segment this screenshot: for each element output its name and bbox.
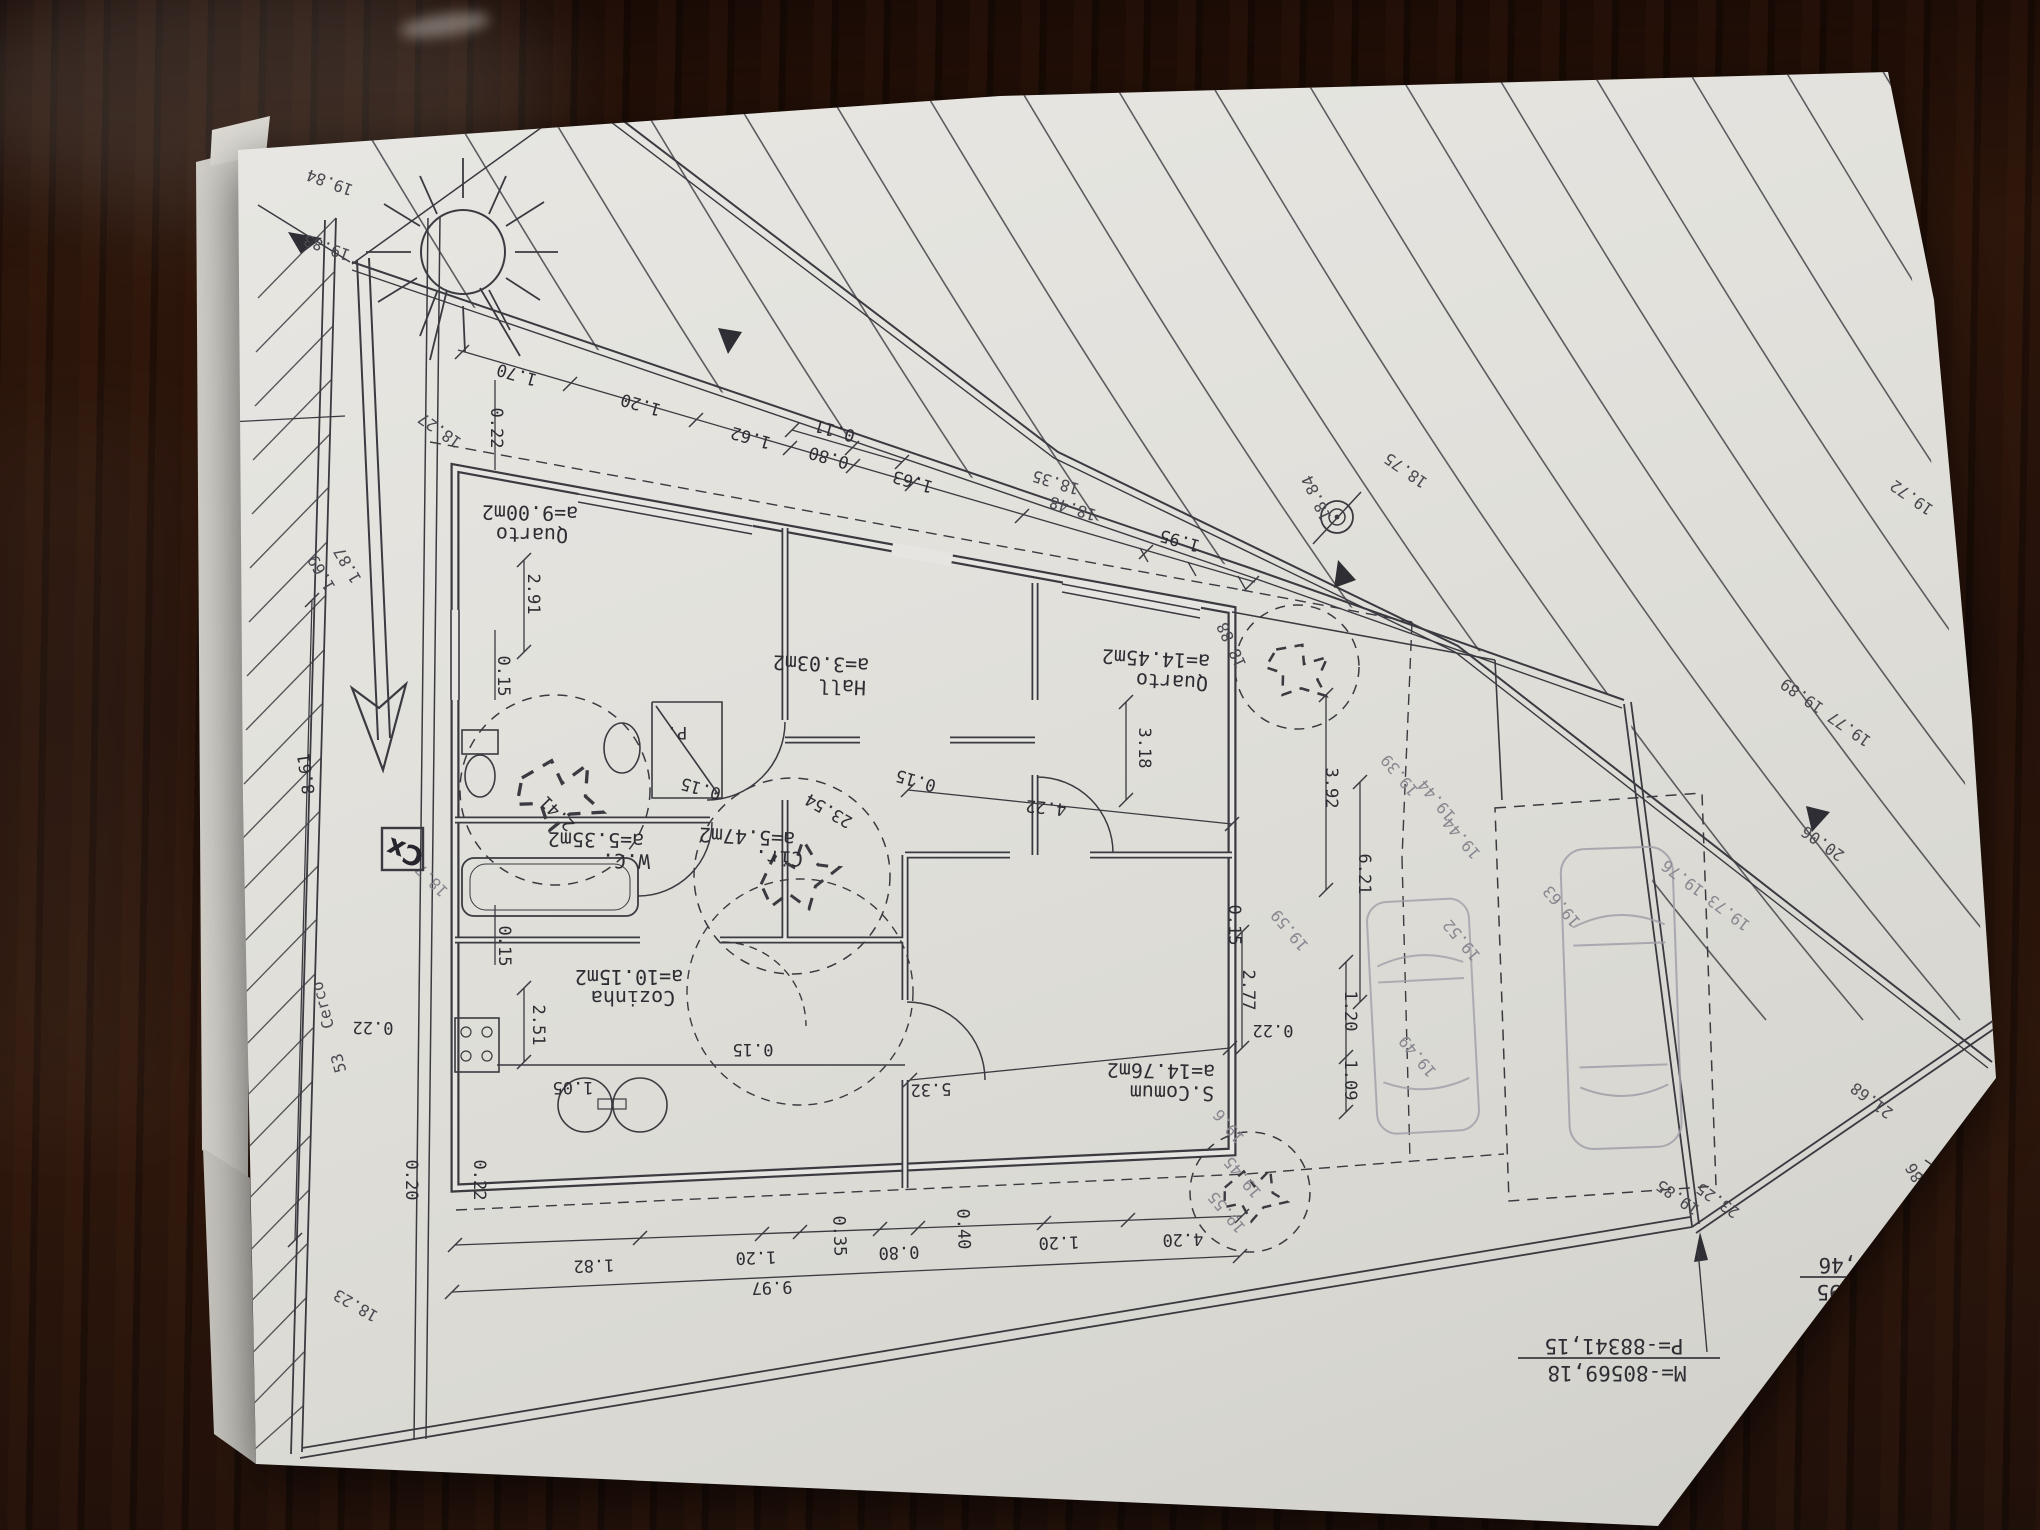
coordinate-label: P=-88341,15 — [1544, 1334, 1683, 1358]
dim-label: 1.82 — [573, 1254, 615, 1275]
elevation-label: 18.88 — [1213, 619, 1251, 671]
dim-label: 0.22 — [486, 408, 506, 449]
dim-label: 1.20 — [619, 389, 664, 420]
elevation-label: 18.84 — [1298, 472, 1336, 524]
dim-label: 6.21 — [1354, 854, 1374, 895]
elevation-label: 19.72 — [1887, 476, 1937, 519]
elevation-label: 23.25 — [1693, 1179, 1743, 1222]
dim-label: 0.22 — [1253, 1020, 1294, 1040]
room-area: a=14.76m2 — [1107, 1058, 1216, 1084]
photo-of-floor-plan: P=-88339,46 M=-80573,95 P=-88341,15 M=-8… — [0, 0, 2040, 1530]
coordinate-callouts: P=-88339,46 M=-80573,95 P=-88341,15 M=-8… — [1518, 1253, 1980, 1385]
dim-label: 0.20 — [401, 1160, 421, 1201]
dim-label: 0.80 — [878, 1241, 920, 1262]
dim-label: 0.15 — [494, 926, 514, 967]
elevation-label: 19.44 — [1439, 814, 1485, 863]
elevation-label: 19.59 — [1267, 906, 1313, 955]
dim-label: 1.20 — [1340, 991, 1360, 1032]
fence-label: 53 — [327, 1051, 350, 1075]
lot-boundary — [258, 94, 2004, 1458]
dim-label: 0.22 — [469, 1160, 489, 1201]
elevation-label: 1.98 — [1938, 1227, 1974, 1270]
room-name: Quarto — [1135, 668, 1208, 696]
dim-label: 8.61 — [294, 752, 320, 795]
coordinate-label: P=-88339,46 — [1818, 1253, 1957, 1277]
dim-label: 2.51 — [528, 1005, 548, 1046]
room-name: W.C. — [602, 849, 651, 874]
dim-label: 2.77 — [1238, 970, 1258, 1011]
dim-label: 1.95 — [1158, 525, 1203, 556]
dim-label: 1.09 — [1340, 1060, 1360, 1101]
elevation-label: 19.77 19.89 — [1777, 674, 1875, 750]
paper-background: P=-88339,46 M=-80573,95 P=-88341,15 M=-8… — [0, 0, 2040, 1530]
dim-label: 0.22 — [352, 1017, 393, 1038]
elevation-label: 18.27 — [415, 409, 465, 452]
dim-label: 1.20 — [735, 1246, 777, 1267]
dim-label: 3.18 — [1134, 728, 1154, 769]
dim-label: 2.91 — [523, 574, 543, 615]
north-arrow-icon — [352, 258, 406, 770]
dim-label: 1.20 — [1038, 1231, 1080, 1252]
elevation-label: 19.45 — [1220, 1153, 1266, 1202]
benchmark-arrow-icon — [718, 328, 742, 354]
dim-label: 0.15 — [733, 1039, 774, 1059]
room-name: Cir. — [754, 845, 803, 871]
site-plan-drawing: P=-88339,46 M=-80573,95 P=-88341,15 M=-8… — [0, 0, 2040, 1530]
toilet-icon — [465, 755, 495, 797]
room-name: S.Comum — [1130, 1080, 1215, 1105]
dim-label: 0.11 — [813, 415, 858, 446]
dim-label: 4.20 — [1162, 1228, 1204, 1249]
tree-symbol — [694, 778, 890, 974]
closet-label: P. — [667, 722, 687, 742]
dim-label: 23.54 — [802, 789, 856, 832]
garage-area — [1366, 793, 1716, 1201]
dim-label: 0.15 — [1224, 905, 1244, 946]
dim-label: 4.22 — [1025, 795, 1068, 819]
elevation-label: 19.84 — [304, 165, 356, 199]
room-area: a=9.00m2 — [482, 500, 579, 526]
elevation-label: 18.75 — [1381, 449, 1431, 492]
room-name: Quarto — [496, 522, 569, 547]
toilet-tank — [462, 730, 498, 754]
fence-label: Cerco — [307, 979, 338, 1030]
dim-label: 0.35 — [828, 1215, 849, 1257]
room-area: a=3.03m2 — [772, 650, 869, 677]
stove-icon — [455, 1018, 499, 1072]
dim-label: 1.62 — [729, 422, 774, 453]
dim-label: 0.40 — [952, 1208, 973, 1250]
elevation-label: 19.6 — [1209, 1105, 1248, 1147]
dim-label: 0.80 — [807, 442, 852, 473]
dim-label: 1.63 — [891, 466, 936, 497]
dim-label: 1.05 — [553, 1077, 594, 1097]
room-name: Cozinha — [591, 986, 675, 1010]
room-area: a=10.15m2 — [575, 965, 683, 989]
elevation-label: 20.06 — [1798, 822, 1848, 865]
dim-label: 0.15 — [493, 656, 513, 697]
dim-label: 5.32 — [910, 1078, 952, 1099]
coordinate-label: M=-80573,95 — [1816, 1280, 1955, 1304]
plan-paper: P=-88339,46 M=-80573,95 P=-88341,15 M=-8… — [0, 0, 2040, 1530]
sun-icon — [366, 158, 558, 360]
coordinate-label: M=-80569,18 — [1547, 1361, 1686, 1385]
tree-symbol — [687, 879, 913, 1105]
benchmark-arrow-icon — [1694, 1232, 1708, 1262]
elevation-label: 18.23 — [330, 1285, 381, 1326]
dim-label: 9.97 — [751, 1276, 793, 1297]
dim-label: 3.92 — [1321, 768, 1341, 809]
elevation-label: 19.83 — [301, 230, 353, 264]
elevation-label: 19.55 — [1204, 1188, 1250, 1237]
elevation-label: 21.86 — [1901, 1160, 1942, 1211]
elevation-label: 19.39 — [1377, 751, 1423, 800]
room-name: Hall — [817, 674, 866, 700]
elevation-label: 19.49 — [1395, 1032, 1441, 1081]
sink-icon — [604, 723, 640, 773]
car-outline — [1560, 846, 1682, 1150]
dim-label: 0.15 — [894, 765, 939, 796]
dim-label: 1.70 — [495, 359, 540, 390]
benchmark-arrow-icon — [1334, 560, 1356, 588]
